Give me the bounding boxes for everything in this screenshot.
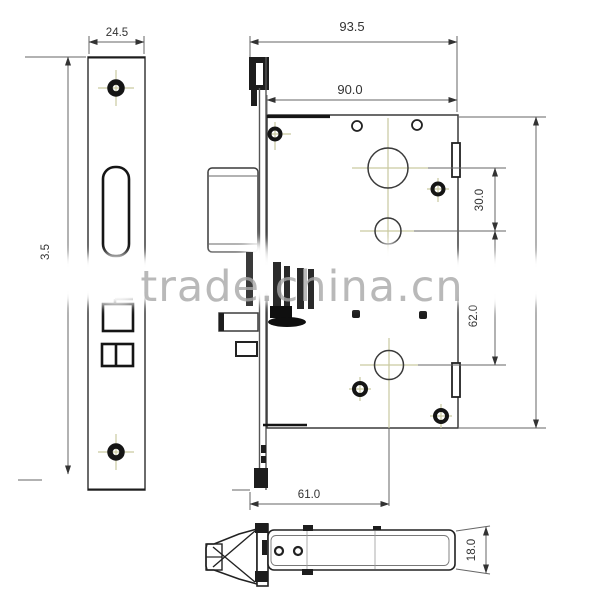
case-hole-small-left: [352, 121, 362, 131]
dim-latch-thickness: 18.0: [456, 526, 490, 574]
latch-faceplate-section: [255, 523, 268, 586]
latch-body-hole-right: [294, 547, 302, 555]
watermark-text: trade.china.cn: [140, 262, 463, 312]
drawing-canvas: 24.5 3.5: [0, 0, 600, 591]
case-stud-right: [419, 311, 427, 319]
dim-faceplate-width: 24.5: [89, 27, 144, 54]
case-hole-small-right: [412, 120, 422, 130]
dim-overall-depth: 93.5: [250, 19, 457, 112]
lock-technical-drawing: 24.5 3.5: [0, 0, 600, 591]
latch-cutout-slot: [103, 167, 129, 256]
latch-top-view: 18.0: [206, 523, 490, 586]
dim-faceplate-width-label: 24.5: [106, 27, 128, 39]
latch-bolt-side: [208, 168, 258, 252]
dim-hub-spacing-label: 30.0: [474, 189, 486, 211]
dim-overall-depth-label: 93.5: [339, 19, 364, 34]
dim-case-length-label: 90.0: [337, 82, 362, 97]
dim-backset-label: 61.0: [298, 489, 320, 501]
latch-body: [268, 525, 455, 575]
aux-bolt-side: [219, 313, 258, 356]
latch-bolt-head: [206, 529, 257, 584]
dim-case-length: 90.0: [267, 82, 457, 114]
dim-latch-thickness-label: 18.0: [466, 539, 478, 561]
case-edge-tab-bottom: [452, 363, 460, 397]
dim-faceplate-height-label: 3.5: [40, 244, 52, 260]
latch-spring-cap: [268, 317, 306, 327]
latch-body-hole-left: [275, 547, 283, 555]
dim-cylinder-spacing-label: 62.0: [468, 305, 480, 327]
case-edge-tab-top: [452, 143, 460, 177]
